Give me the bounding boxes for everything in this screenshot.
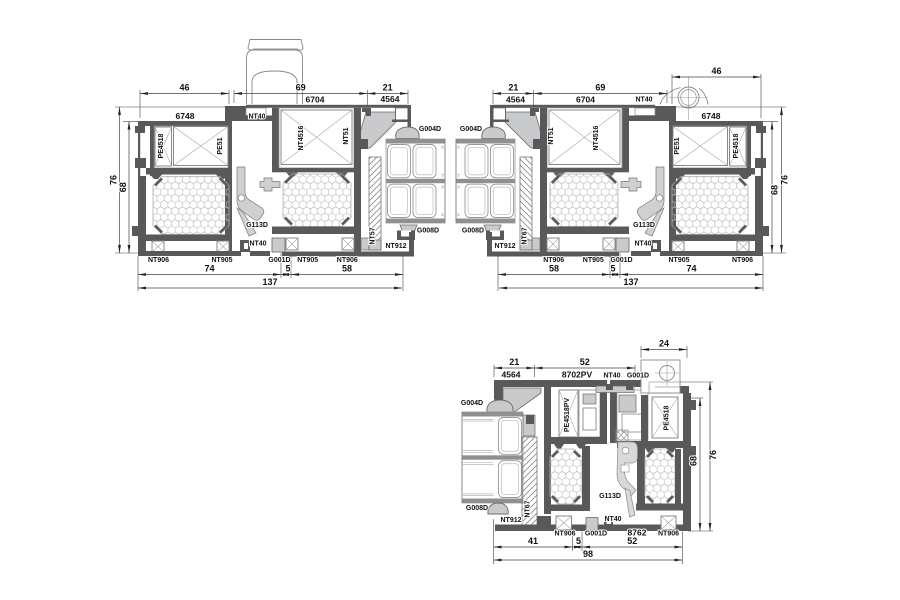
svg-text:21: 21 [509, 357, 519, 367]
svg-text:137: 137 [623, 277, 638, 287]
svg-text:137: 137 [262, 277, 277, 287]
svg-text:4564: 4564 [502, 370, 521, 380]
svg-text:PE51: PE51 [674, 137, 681, 154]
svg-text:6704: 6704 [306, 95, 325, 105]
svg-text:NT912: NT912 [494, 243, 515, 250]
svg-text:24: 24 [659, 338, 669, 348]
svg-text:G113D: G113D [633, 222, 655, 229]
svg-text:NT67: NT67 [522, 227, 529, 244]
svg-text:NT912: NT912 [385, 243, 406, 250]
svg-text:G001D: G001D [268, 257, 290, 264]
svg-text:G113D: G113D [246, 222, 268, 229]
svg-text:8702PV: 8702PV [562, 370, 593, 380]
svg-text:74: 74 [204, 263, 214, 273]
svg-text:NT51: NT51 [548, 127, 555, 144]
svg-text:68: 68 [689, 456, 699, 466]
svg-text:NT906: NT906 [543, 257, 564, 264]
svg-text:G008D: G008D [417, 228, 439, 235]
svg-text:52: 52 [580, 357, 590, 367]
svg-text:68: 68 [770, 185, 780, 195]
svg-text:76: 76 [708, 450, 718, 460]
svg-text:NT905: NT905 [211, 257, 232, 264]
svg-text:76: 76 [780, 175, 790, 185]
svg-text:PE4518: PE4518 [733, 133, 740, 158]
svg-text:PE4518: PE4518 [158, 133, 165, 158]
svg-text:NT51: NT51 [343, 127, 350, 144]
svg-text:NT40: NT40 [603, 373, 620, 380]
svg-text:PE51: PE51 [217, 137, 224, 154]
svg-text:NT906: NT906 [658, 531, 679, 538]
svg-text:G001D: G001D [585, 531, 607, 538]
svg-text:69: 69 [296, 82, 306, 92]
svg-text:G004D: G004D [461, 400, 483, 407]
svg-text:NT40: NT40 [248, 114, 265, 121]
svg-text:NT906: NT906 [148, 257, 169, 264]
svg-text:NT4516: NT4516 [593, 125, 600, 150]
svg-text:5: 5 [610, 263, 615, 273]
svg-text:NT906: NT906 [337, 257, 358, 264]
svg-text:69: 69 [595, 82, 605, 92]
svg-text:NT906: NT906 [732, 257, 753, 264]
svg-text:6748: 6748 [702, 111, 721, 121]
svg-text:6704: 6704 [576, 95, 595, 105]
svg-text:98: 98 [583, 549, 593, 559]
svg-text:21: 21 [508, 82, 518, 92]
svg-text:NT40: NT40 [604, 516, 621, 523]
svg-text:68: 68 [118, 182, 128, 192]
svg-text:G113D: G113D [599, 493, 621, 500]
svg-text:PE4518: PE4518 [664, 405, 671, 430]
svg-text:G004D: G004D [419, 126, 441, 133]
svg-text:NT40: NT40 [634, 241, 651, 248]
svg-text:NT4516: NT4516 [298, 125, 305, 150]
svg-text:4564: 4564 [381, 94, 400, 104]
svg-text:NT905: NT905 [668, 257, 689, 264]
svg-text:46: 46 [711, 66, 721, 76]
svg-text:21: 21 [383, 82, 393, 92]
svg-text:5: 5 [285, 263, 290, 273]
svg-text:NT912: NT912 [500, 517, 521, 524]
svg-text:41: 41 [528, 536, 538, 546]
svg-text:58: 58 [549, 263, 559, 273]
svg-text:5: 5 [576, 536, 581, 546]
svg-text:NT40: NT40 [249, 241, 266, 248]
svg-text:74: 74 [686, 263, 696, 273]
svg-text:NT67: NT67 [525, 500, 532, 517]
svg-text:G004D: G004D [460, 126, 482, 133]
svg-text:G001D: G001D [627, 373, 649, 380]
svg-text:NT40: NT40 [635, 97, 652, 104]
svg-text:G008D: G008D [466, 505, 488, 512]
svg-text:PE4518PV: PE4518PV [564, 398, 571, 433]
svg-text:NT905: NT905 [297, 257, 318, 264]
svg-text:4564: 4564 [506, 95, 525, 105]
svg-text:NT905: NT905 [583, 257, 604, 264]
svg-text:G008D: G008D [462, 228, 484, 235]
svg-text:76: 76 [108, 175, 118, 185]
svg-text:G001D: G001D [610, 257, 632, 264]
svg-text:NT906: NT906 [554, 531, 575, 538]
svg-text:8762: 8762 [628, 528, 647, 538]
svg-text:NT57: NT57 [370, 227, 377, 244]
svg-text:58: 58 [342, 263, 352, 273]
svg-text:6748: 6748 [176, 111, 195, 121]
svg-text:46: 46 [179, 82, 189, 92]
